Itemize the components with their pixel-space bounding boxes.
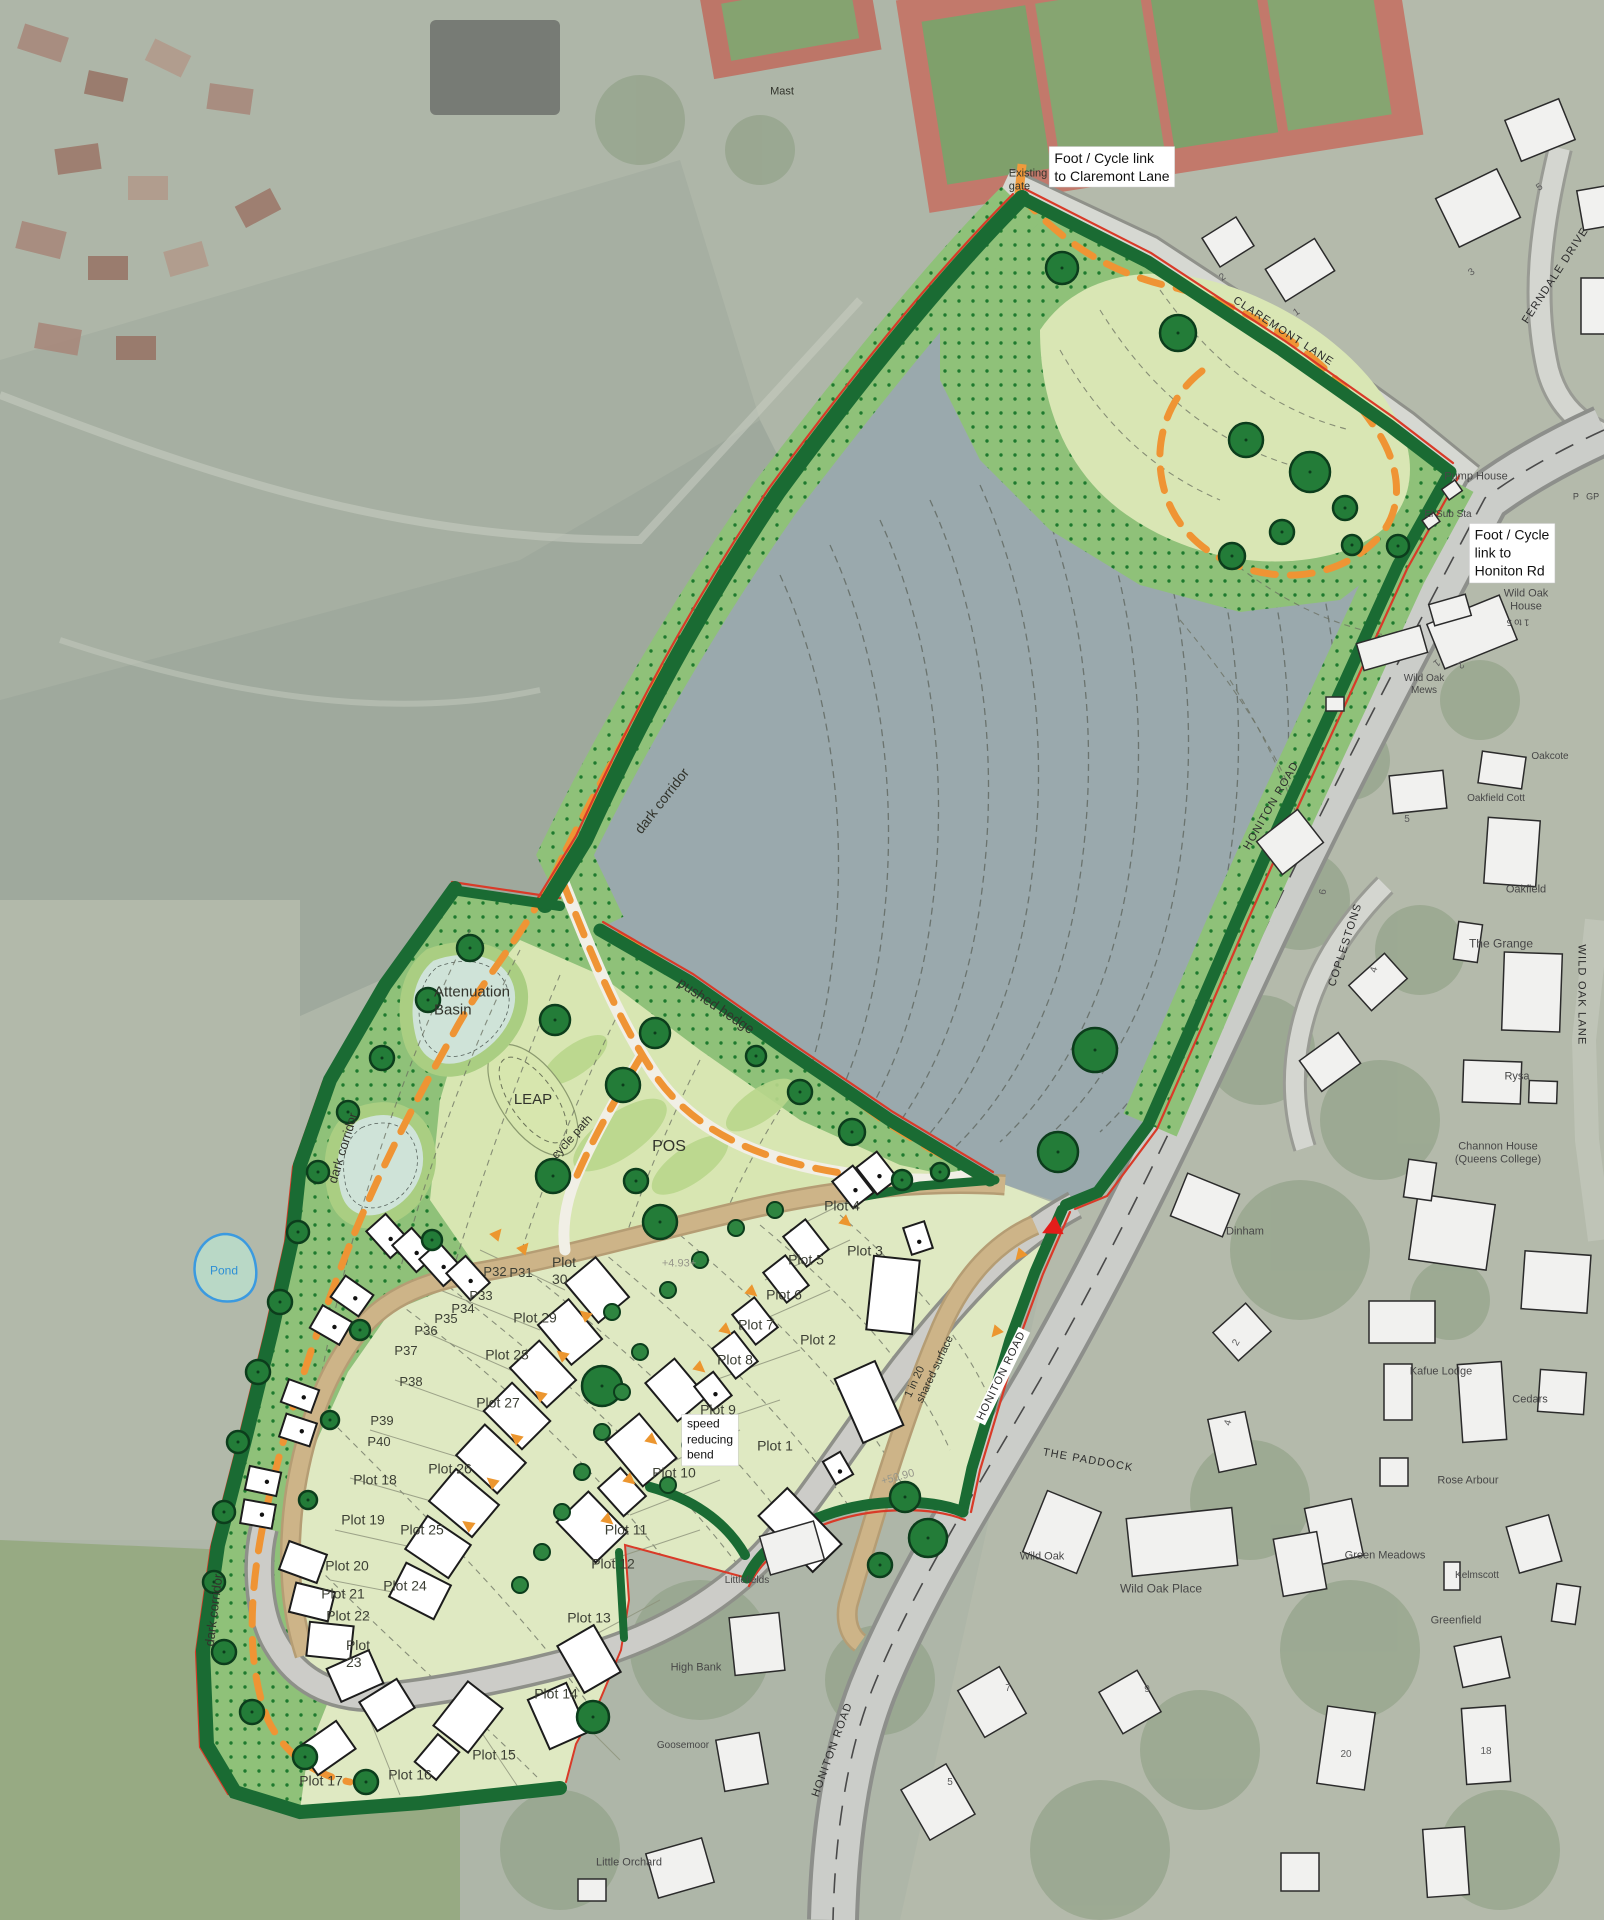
building-footprint [1423, 1827, 1470, 1898]
house-footprint [866, 1256, 919, 1334]
building-footprint [1403, 1159, 1436, 1201]
building-footprint [1457, 1362, 1506, 1443]
building-footprint [1529, 1081, 1558, 1104]
map-canvas [0, 0, 1604, 1920]
building-footprint [716, 1733, 768, 1792]
street-tree-icon [604, 1304, 620, 1320]
street-tree-icon [594, 1424, 610, 1440]
building-footprint [1380, 1458, 1408, 1486]
site-masterplan-map: Foot / Cycle link to Claremont LaneFoot … [0, 0, 1604, 1920]
street-tree-icon [534, 1544, 550, 1560]
building-footprint [1462, 1060, 1521, 1104]
house-footprint [245, 1466, 281, 1496]
building-footprint [1551, 1584, 1580, 1625]
building-footprint [1444, 1562, 1460, 1590]
street-tree-icon [554, 1504, 570, 1520]
street-tree-icon [767, 1202, 783, 1218]
street-tree-icon [574, 1464, 590, 1480]
street-tree-icon [512, 1577, 528, 1593]
street-tree-icon [660, 1282, 676, 1298]
building-footprint [1369, 1301, 1435, 1343]
house-footprint [240, 1499, 276, 1528]
building-footprint [1273, 1532, 1326, 1597]
building-footprint [1484, 817, 1540, 886]
building-footprint [1478, 751, 1526, 789]
street-tree-icon [728, 1220, 744, 1236]
house-footprint [306, 1622, 353, 1660]
street-tree-icon [682, 1437, 698, 1453]
building-footprint [1461, 1706, 1510, 1785]
building-footprint [1454, 1636, 1510, 1687]
building-footprint [1409, 1194, 1495, 1270]
street-tree-icon [692, 1252, 708, 1268]
building-footprint [578, 1879, 606, 1901]
building-footprint [1317, 1706, 1375, 1790]
building-footprint [1521, 1251, 1591, 1313]
building-footprint [729, 1613, 785, 1676]
building-footprint [1384, 1364, 1412, 1420]
building-footprint [1502, 952, 1563, 1032]
building-footprint [1538, 1369, 1587, 1414]
street-tree-icon [660, 1477, 676, 1493]
street-tree-icon [632, 1344, 648, 1360]
attenuation-basin-2 [331, 1109, 429, 1222]
building-footprint [1126, 1508, 1237, 1577]
pond-shape [195, 1234, 257, 1301]
building-footprint [1389, 770, 1447, 813]
street-tree-icon [614, 1384, 630, 1400]
building-footprint [1581, 278, 1604, 334]
building-footprint [1326, 697, 1344, 711]
building-footprint [1453, 922, 1482, 963]
building-footprint [1281, 1853, 1319, 1891]
